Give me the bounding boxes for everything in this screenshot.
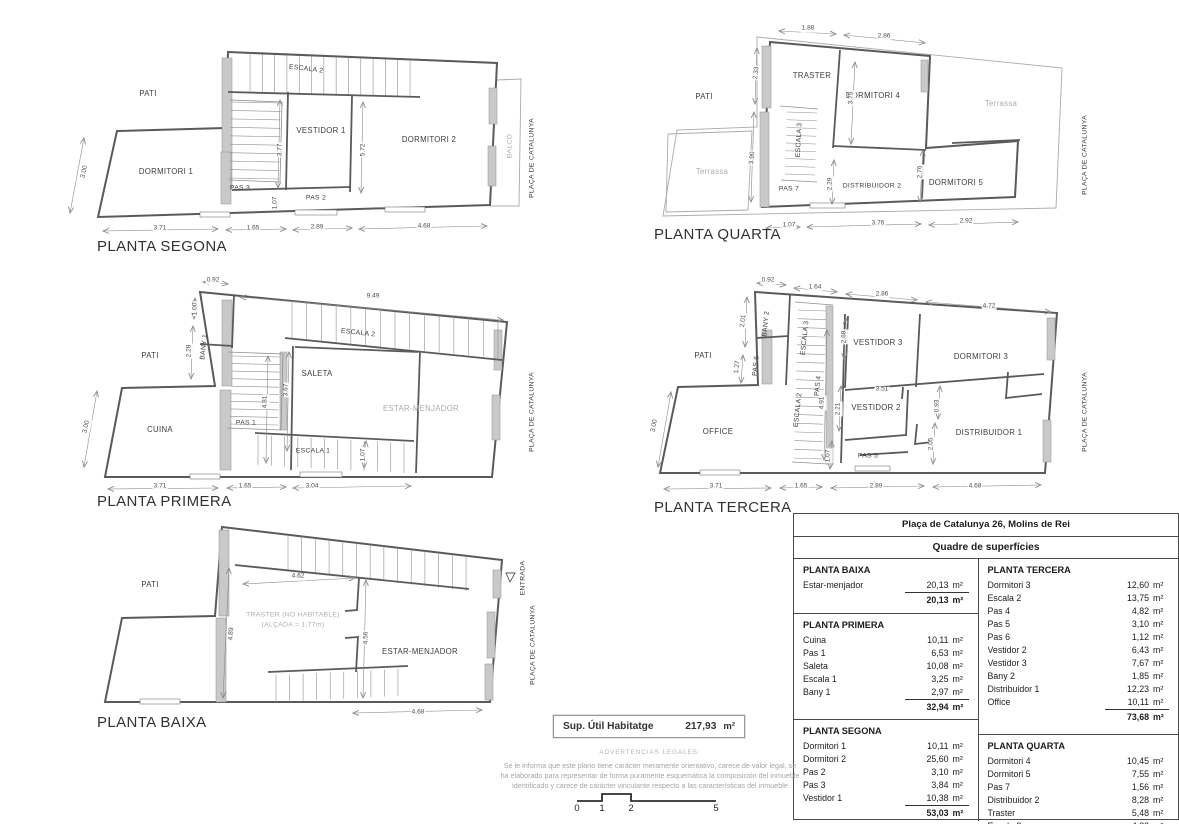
row-value: 1,56: [1105, 781, 1149, 794]
row-unit: m²: [1149, 618, 1169, 631]
wall-segment: [220, 390, 231, 470]
dim-label: 4.68: [417, 224, 432, 231]
row-value: 2,97: [905, 686, 949, 699]
dimension-line: [807, 224, 921, 227]
room-label: PAS 1: [236, 421, 256, 428]
window-mark: [140, 699, 180, 704]
row-unit: m²: [949, 753, 969, 766]
dim-label: 2.92: [959, 219, 974, 226]
row-label: Dormitori 5: [988, 768, 1105, 781]
table-row: Vestidor 37,67m²: [988, 657, 1169, 670]
dim-label: 5.72: [361, 143, 368, 158]
row-value: 12,23: [1105, 683, 1149, 696]
row-value: 20,13: [905, 579, 949, 592]
wall-segment: [1047, 318, 1055, 360]
window-mark: [855, 466, 890, 471]
wall-segment: [762, 46, 771, 108]
window-mark: [190, 474, 220, 479]
room-label: DORMITORI 3: [954, 353, 1008, 361]
table-row: Dormitori 312,60m²: [988, 579, 1169, 592]
room-label: VESTIDOR 3: [853, 339, 902, 347]
table-row: Pas 44,82m²: [988, 605, 1169, 618]
dim-label: 0.92: [206, 278, 221, 285]
legal-notice: Se le informa que este plano tiene carác…: [428, 761, 872, 790]
row-unit: m²: [1149, 579, 1169, 592]
row-value: 53,03: [905, 805, 949, 821]
dim-label: 1.07: [782, 223, 797, 230]
dim-label: 2.21: [836, 402, 843, 417]
row-value: 20,13: [905, 592, 949, 608]
row-value: 6,43: [1105, 644, 1149, 657]
legal-line: identificado y carece de carácter vincul…: [428, 781, 872, 791]
wall-segment: [487, 612, 495, 658]
row-value: 5,48: [1105, 807, 1149, 820]
dim-label: 3.67: [284, 383, 291, 398]
wall-segment: [488, 146, 496, 186]
dim-label: 3.75: [849, 91, 856, 106]
dim-label: 2.89: [310, 225, 325, 232]
row-label: Cuina: [803, 634, 905, 647]
row-label: [803, 699, 905, 715]
row-unit: m²: [949, 592, 969, 608]
table-row: Saleta10,08m²: [803, 660, 969, 673]
row-unit: m²: [1149, 768, 1169, 781]
wall-segment: [489, 88, 497, 124]
wall-segment: [485, 664, 493, 700]
table-row: Bany 12,97m²: [803, 686, 969, 699]
dim-label: 2.86: [875, 292, 890, 299]
row-unit: m²: [1149, 807, 1169, 820]
room-label: PLAÇA DE CATALUNYA: [531, 605, 538, 685]
row-label: Saleta: [803, 660, 905, 673]
legal-heading: ADVERTENCIAS LEGALES:: [400, 749, 900, 756]
dim-label: 1.88: [801, 26, 816, 33]
wall-segment: [222, 300, 232, 386]
row-value: 6,53: [905, 647, 949, 660]
row-value: 3,25: [905, 673, 949, 686]
legal-line: Se le informa que este plano tiene carác…: [428, 761, 872, 771]
table-row: Pas 61,12m²: [988, 631, 1169, 644]
total-area-value: 217,93: [685, 721, 716, 732]
room-label: PAS 3: [230, 186, 250, 193]
row-label: Distribuidor 1: [988, 683, 1105, 696]
room-label: PATI: [695, 93, 712, 101]
plan-title-primera: PLANTA PRIMERA: [97, 493, 232, 510]
wall-segment: [826, 306, 833, 464]
row-unit: m²: [949, 792, 969, 805]
table-row: Escala 13,25m²: [803, 673, 969, 686]
dim-label: 4.68: [411, 710, 426, 717]
section-header: PLANTA QUARTA: [988, 739, 1169, 755]
window-mark: [810, 203, 845, 208]
plan-title-tercera: PLANTA TERCERA: [654, 499, 792, 516]
row-unit: m²: [949, 673, 969, 686]
table-row: Vestidor 26,43m²: [988, 644, 1169, 657]
row-unit: m²: [949, 766, 969, 779]
window-mark: [385, 207, 425, 212]
section-total-row: 32,94m²: [803, 699, 969, 715]
section-header: PLANTA SEGONA: [803, 724, 969, 740]
row-label: Escala 3: [988, 820, 1105, 824]
row-unit: m²: [949, 660, 969, 673]
table-row: Escala 34,83m²: [988, 820, 1169, 824]
row-label: Pas 7: [988, 781, 1105, 794]
table-row: Dormitori 410,45m²: [988, 755, 1169, 768]
row-label: Pas 4: [988, 605, 1105, 618]
dim-label: 3.71: [153, 484, 168, 491]
dim-label: 9.49: [366, 294, 381, 301]
row-value: 13,75: [1105, 592, 1149, 605]
scale-tick: 0: [574, 803, 579, 814]
row-value: 10,11: [905, 634, 949, 647]
section-total-row: 73,68m²: [988, 709, 1169, 725]
row-value: 7,55: [1105, 768, 1149, 781]
dim-label: 0.93: [935, 399, 942, 414]
room-label: PAS 5: [858, 454, 878, 461]
scale-tick: 5: [713, 803, 718, 814]
row-label: Dormitori 4: [988, 755, 1105, 768]
dim-label: 2.28: [187, 344, 194, 359]
row-label: Distribuidor 2: [988, 794, 1105, 807]
wall-segment: [921, 60, 928, 92]
scale-tick: 1: [599, 803, 604, 814]
row-value: 3,84: [905, 779, 949, 792]
wall-segment: [760, 112, 769, 207]
room-label: ESCALA 1: [296, 449, 331, 456]
row-unit: m²: [1149, 644, 1169, 657]
row-unit: m²: [1149, 683, 1169, 696]
table-row: Estar-menjador20,13m²: [803, 579, 969, 592]
room-label: ESTAR-MENJADOR: [383, 405, 459, 413]
row-label: Pas 6: [988, 631, 1105, 644]
row-unit: m²: [1149, 755, 1169, 768]
dim-label: 2.89: [869, 484, 884, 491]
table-row: Cuina10,11m²: [803, 634, 969, 647]
row-value: 10,38: [905, 792, 949, 805]
row-label: Vestidor 3: [988, 657, 1105, 670]
dim-label: 0.92: [761, 278, 776, 285]
row-unit: m²: [1149, 696, 1169, 709]
dim-label: 1.64: [808, 285, 823, 292]
window-mark: [200, 212, 230, 217]
dimension-line: [227, 487, 286, 488]
row-label: Bany 2: [988, 670, 1105, 683]
window-mark: [295, 210, 337, 215]
row-unit: m²: [1149, 631, 1169, 644]
dim-label: 3.04: [305, 484, 320, 491]
row-unit: m²: [1149, 670, 1169, 683]
row-unit: m²: [949, 740, 969, 753]
room-label: PLAÇA DE CATALUNYA: [530, 372, 537, 452]
legal-line: ha elaborado para representar de forma p…: [428, 771, 872, 781]
row-value: 10,11: [905, 740, 949, 753]
row-value: 4,83: [1105, 820, 1149, 824]
dim-label: 2.05: [929, 437, 936, 452]
row-label: Bany 1: [803, 686, 905, 699]
row-label: Traster: [988, 807, 1105, 820]
total-area-box: Sup. Útil Habitatge 217,93 m²: [553, 715, 745, 738]
plan-title-quarta: PLANTA QUARTA: [654, 226, 781, 243]
row-label: Pas 1: [803, 647, 905, 660]
dim-label: 4.56: [364, 631, 371, 646]
room-label: PAS 7: [779, 187, 799, 194]
row-unit: m²: [949, 686, 969, 699]
room-label: PAS 2: [306, 196, 326, 203]
table-row: Bany 21,85m²: [988, 670, 1169, 683]
row-label: Vestidor 2: [988, 644, 1105, 657]
dim-label: 4.62: [291, 574, 306, 581]
plan-title-segona: PLANTA SEGONA: [97, 238, 227, 255]
row-unit: m²: [1149, 781, 1169, 794]
scale-tick: 2: [628, 803, 633, 814]
row-unit: m²: [949, 699, 969, 715]
table-column: PLANTA TERCERADormitori 312,60m²Escala 2…: [978, 559, 1178, 821]
room-label: CUINA: [147, 426, 173, 434]
section-header: PLANTA PRIMERA: [803, 618, 969, 634]
row-value: 12,60: [1105, 579, 1149, 592]
room-label: DORMITORI 5: [929, 179, 983, 187]
section-header: PLANTA TERCERA: [988, 563, 1169, 579]
dim-label: 3.71: [153, 226, 168, 233]
table-row: Escala 213,75m²: [988, 592, 1169, 605]
row-unit: m²: [1149, 657, 1169, 670]
room-label: TRASTER: [793, 72, 832, 80]
row-value: 7,67: [1105, 657, 1149, 670]
room-label: VESTIDOR 1: [296, 127, 345, 135]
row-label: Dormitori 3: [988, 579, 1105, 592]
table-section: PLANTA QUARTADormitori 410,45m²Dormitori…: [979, 734, 1178, 824]
window-mark: [300, 472, 342, 477]
dim-label: 2.76: [918, 165, 925, 180]
room-label: PATI: [141, 581, 158, 589]
row-unit: m²: [1149, 605, 1169, 618]
table-row: Vestidor 110,38m²: [803, 792, 969, 805]
room-label: DISTRIBUIDOR 1: [956, 429, 1023, 437]
row-label: Office: [988, 696, 1105, 709]
wall-segment: [1043, 420, 1051, 462]
row-unit: m²: [1149, 794, 1169, 807]
row-unit: m²: [949, 634, 969, 647]
table-title: Plaça de Catalunya 26, Molins de Rei: [794, 514, 1178, 537]
room-label: PLAÇA DE CATALUNYA: [1083, 115, 1090, 195]
dim-label: 3.71: [709, 484, 724, 491]
table-row: Distribuidor 28,28m²: [988, 794, 1169, 807]
row-label: [988, 709, 1105, 725]
dim-label: 1.07: [826, 449, 833, 464]
room-label: (ALÇADA = 1,77m): [262, 623, 325, 630]
wall-segment: [493, 570, 501, 598]
dim-label: 1.65: [246, 226, 261, 233]
room-label: SALETA: [301, 370, 332, 378]
row-label: [803, 805, 905, 821]
table-row: Office10,11m²: [988, 696, 1169, 709]
table-section: PLANTA TERCERADormitori 312,60m²Escala 2…: [979, 559, 1178, 730]
row-value: 3,10: [1105, 618, 1149, 631]
dim-label: 1.00: [193, 302, 200, 317]
row-value: 4,82: [1105, 605, 1149, 618]
row-value: 73,68: [1105, 709, 1149, 725]
row-value: 1,12: [1105, 631, 1149, 644]
dim-label: 1.65: [794, 484, 809, 491]
room-label: ESTAR-MENJADOR: [382, 648, 458, 656]
table-row: Distribuidor 112,23m²: [988, 683, 1169, 696]
row-label: Pas 5: [988, 618, 1105, 631]
total-area-label: Sup. Útil Habitatge: [563, 721, 685, 732]
dim-label: 4.68: [968, 484, 983, 491]
row-label: [803, 592, 905, 608]
wall-segment: [492, 395, 500, 440]
room-label: TRASTER (NO HABITABLE): [246, 613, 340, 620]
row-value: 3,10: [905, 766, 949, 779]
dimension-line: [933, 485, 1041, 487]
window-mark: [700, 470, 740, 475]
table-row: Pas 53,10m²: [988, 618, 1169, 631]
dim-label: 2.68: [842, 330, 849, 345]
table-row: Dormitori 57,55m²: [988, 768, 1169, 781]
table-section: PLANTA BAIXAEstar-menjador20,13m²20,13m²: [794, 559, 978, 613]
dim-label: 2.29: [828, 177, 835, 192]
dim-label: 1.07: [361, 448, 368, 463]
dim-label: 3.77: [278, 143, 285, 158]
table-row: Pas 16,53m²: [803, 647, 969, 660]
room-label: DISTRIBUIDOR 2: [843, 184, 902, 191]
room-label: Terrassa: [985, 100, 1017, 108]
row-unit: m²: [1149, 709, 1169, 725]
room-label: PATI: [694, 352, 711, 360]
building-outline: [660, 292, 1057, 473]
dim-label: 1.65: [238, 484, 253, 491]
room-label: PLAÇA DE CATALUNYA: [1083, 372, 1090, 452]
row-unit: m²: [949, 779, 969, 792]
floorplan-page: PATIESCALA 2VESTIDOR 1DORMITORI 2DORMITO…: [0, 0, 1179, 824]
dim-label: 1.07: [273, 196, 280, 211]
section-total-row: 20,13m²: [803, 592, 969, 608]
row-value: 10,11: [1105, 696, 1149, 709]
dim-label: 3.51: [875, 387, 890, 394]
scale-bar: [577, 794, 716, 801]
table-row: Pas 71,56m²: [988, 781, 1169, 794]
dim-label: 4.89: [228, 626, 236, 641]
room-label: DORMITORI 1: [139, 168, 193, 176]
row-label: Escala 2: [988, 592, 1105, 605]
section-header: PLANTA BAIXA: [803, 563, 969, 579]
room-label: BALCÓ: [508, 134, 515, 159]
room-label: PLAÇA DE CATALUNYA: [530, 118, 537, 198]
room-label: ENTRADA: [521, 561, 528, 596]
entrada-marker-icon: [506, 573, 515, 582]
row-label: Vestidor 1: [803, 792, 905, 805]
row-label: Escala 1: [803, 673, 905, 686]
dim-label: 4.81: [263, 395, 270, 410]
room-label: PATI: [139, 90, 156, 98]
row-value: 1,85: [1105, 670, 1149, 683]
table-row: Traster5,48m²: [988, 807, 1169, 820]
dim-label: 2.86: [877, 34, 892, 41]
room-label: Terrassa: [696, 168, 728, 176]
row-unit: m²: [949, 579, 969, 592]
dimension-line: [929, 222, 1018, 225]
section-total-row: 53,03m²: [803, 805, 969, 821]
row-unit: m²: [949, 647, 969, 660]
row-value: 8,28: [1105, 794, 1149, 807]
row-label: Estar-menjador: [803, 579, 905, 592]
row-value: 10,08: [905, 660, 949, 673]
row-value: 32,94: [905, 699, 949, 715]
row-value: 10,45: [1105, 755, 1149, 768]
row-unit: m²: [949, 805, 969, 821]
row-value: 25,60: [905, 753, 949, 766]
dim-label: 4.72: [982, 304, 997, 311]
table-subtitle: Quadre de superfícies: [794, 537, 1178, 559]
table-section: PLANTA PRIMERACuina10,11m²Pas 16,53m²Sal…: [794, 613, 978, 720]
interior-wall: [902, 387, 903, 399]
room-label: VESTIDOR 2: [851, 404, 900, 412]
dim-label: 4.91: [820, 396, 827, 411]
dim-label: 3.76: [871, 221, 886, 228]
row-unit: m²: [1149, 592, 1169, 605]
row-unit: m²: [1149, 820, 1169, 824]
room-label: PATI: [141, 352, 158, 360]
plan-title-baixa: PLANTA BAIXA: [97, 714, 207, 731]
room-label: DORMITORI 2: [402, 136, 456, 144]
total-area-unit: m²: [723, 721, 735, 732]
room-label: OFFICE: [703, 428, 733, 436]
